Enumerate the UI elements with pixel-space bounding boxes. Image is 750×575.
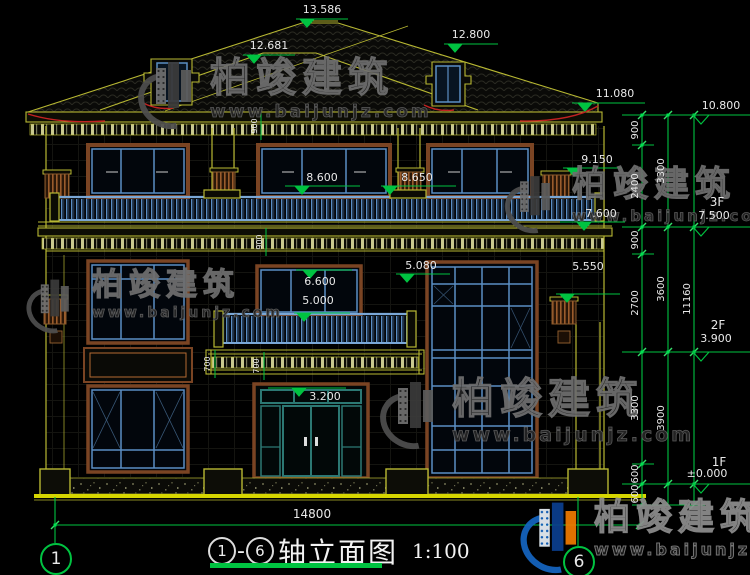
level-cornice2f-right: 5.550	[572, 261, 604, 272]
level-balcony3f-right: 8.650	[401, 172, 433, 183]
axis-bubble-6: 6	[563, 546, 595, 575]
watermark-brand: 柏竣建筑	[92, 270, 283, 301]
chain-dim: 2700	[631, 290, 641, 315]
railing-height-dim: 900	[251, 118, 259, 133]
overall-width-dim: 14800	[293, 508, 331, 520]
chain-dim: 3300	[657, 158, 667, 183]
level-dormer-ridge: 12.800	[452, 29, 491, 40]
railing-height-dim: 900	[256, 234, 264, 249]
cad-elevation-drawing: 柏竣建筑 www.baijunjz.com 柏竣建筑 www.baijunjz.…	[0, 0, 750, 575]
title-axis-end: 6	[246, 537, 274, 565]
chain-dim: 3300	[631, 395, 641, 420]
watermark-url: www.baijunjz.com	[92, 305, 283, 321]
level-eave: 11.080	[596, 88, 635, 99]
watermark-url: www.baijunjz.com	[594, 540, 750, 559]
level-parapet: 10.800	[702, 100, 741, 111]
brand-logo-footer: 柏竣建筑 www.baijunjz.com	[524, 500, 750, 564]
axis-bubble-1: 1	[40, 543, 72, 575]
floor-label-2f: 2F	[711, 319, 726, 331]
title-axis-start: 1	[208, 537, 236, 565]
window-1f-left	[88, 386, 188, 472]
level-cornice3f: 7.600	[585, 208, 617, 219]
title-dash: -	[237, 539, 245, 564]
brand-logo-icon	[507, 173, 558, 227]
level-right-capital: 9.150	[581, 154, 613, 165]
chain-dim: 600	[631, 484, 641, 503]
floor-label-3f: 3F	[710, 196, 725, 208]
level-balcony3f-left: 8.600	[306, 172, 338, 183]
level-main-ridge: 13.586	[303, 4, 342, 15]
chain-dim: 900	[631, 230, 641, 249]
watermark-url: www.baijunjz.com	[210, 102, 432, 122]
chain-total-dim: 11160	[683, 283, 693, 315]
floor-level-3f: 7.500	[698, 210, 730, 221]
chain-dim: 3900	[657, 405, 667, 430]
level-secondary-ridge: 12.681	[250, 40, 289, 51]
chain-dim: 2400	[631, 173, 641, 198]
watermark-top: 柏竣建筑 www.baijunjz.com	[140, 58, 432, 122]
dormer-right	[426, 62, 471, 106]
level-door-transom: 3.200	[309, 391, 341, 402]
watermark-brand: 柏竣建筑	[210, 58, 432, 98]
brand-logo-icon	[140, 58, 200, 122]
floor-level-1f: ±0.000	[687, 468, 728, 479]
chain-dim: 900	[631, 120, 641, 139]
level-balcony2f: 5.000	[302, 295, 334, 306]
title-scale: 1:100	[412, 539, 470, 563]
watermark-left: 柏竣建筑 www.baijunjz.com	[22, 270, 283, 334]
chain-dim: 3600	[657, 276, 667, 301]
level-window2f: 6.600	[304, 276, 336, 287]
brand-logo-icon	[382, 378, 442, 442]
brand-logo-icon	[28, 276, 76, 327]
title-underline	[210, 563, 382, 568]
watermark-brand: 柏竣建筑	[594, 500, 750, 536]
watermark-center: 柏竣建筑 www.baijunjz.com	[382, 378, 694, 446]
balcony-slab-dim: 700	[253, 358, 261, 373]
level-cornice2f-left: 5.080	[405, 260, 437, 271]
balcony-slab-dim: 700	[204, 356, 212, 371]
chain-dim: 600	[631, 464, 641, 483]
floor-level-2f: 3.900	[700, 333, 732, 344]
spandrel-panel	[84, 348, 192, 382]
